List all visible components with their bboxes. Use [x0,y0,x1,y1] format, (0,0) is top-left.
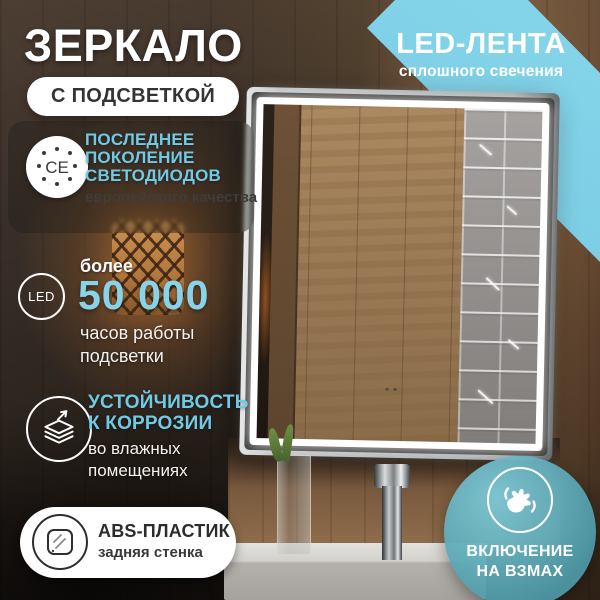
reflected-tiles [457,108,542,444]
hours-value: 50 000 [78,272,209,319]
tile-highlight [477,390,493,405]
corrosion-sub-line2: помещениях [88,460,188,482]
waving-hand-icon [487,467,553,533]
ribbon-title: LED-ЛЕНТА [383,30,579,59]
ribbon-text: LED-ЛЕНТА сплошного свечения [383,30,579,81]
feature-leds-text: ПОСЛЕДНЕЕ ПОКОЛЕНИЕ СВЕТОДИОДОВ европейс… [85,131,257,207]
feature-leds-subtitle: европейского качества [85,189,257,207]
feature-leds-line3: СВЕТОДИОДОВ [85,167,257,185]
mirror-reflection [257,104,543,444]
ribbon-subtitle: сплошного свечения [383,63,579,81]
faucet-neck [382,486,402,560]
tile-highlight [507,339,519,350]
svg-text:CE: CE [45,158,69,177]
gesture-line2: НА ВЗМАХ [444,562,596,582]
feature-corrosion-subtitle: во влажных помещениях [88,438,188,482]
product-banner: LED-ЛЕНТА сплошного свечения ЗЕРКАЛО С П… [0,0,600,600]
abs-subtitle: задняя стенка [98,544,203,561]
page-title: ЗЕРКАЛО [24,20,243,72]
ce-certified-icon: CE [26,136,88,198]
tile-highlight [486,277,500,291]
faucet [374,464,410,488]
corrosion-line1: УСТОЙЧИВОСТЬ [88,392,249,413]
feature-leds-line2: ПОКОЛЕНИЕ [85,149,257,167]
abs-title: ABS-ПЛАСТИК [98,521,230,542]
hours-subtitle: часов работы подсветки [80,322,194,368]
corrosion-sub-line1: во влажных [88,438,188,460]
led-mirror [239,87,560,461]
gesture-badge-text: ВКЛЮЧЕНИЕ НА ВЗМАХ [444,542,596,582]
touch-sensor-dots [386,387,397,390]
tile-highlight [479,144,492,156]
mirror-back-icon [32,514,88,570]
layers-arrow-icon [26,396,92,462]
hours-sub-line2: подсветки [80,345,194,368]
corrosion-line2: К КОРРОЗИИ [88,413,249,434]
tile-highlight [506,205,517,215]
feature-leds-line1: ПОСЛЕДНЕЕ [85,131,257,149]
gesture-line1: ВКЛЮЧЕНИЕ [444,542,596,562]
subtitle-pill: С ПОДСВЕТКОЙ [27,77,239,116]
gesture-activation-badge: ВКЛЮЧЕНИЕ НА ВЗМАХ [444,456,596,600]
hours-sub-line1: часов работы [80,322,194,345]
glass-cup [277,455,311,555]
led-ring-icon: LED [18,273,65,320]
feature-corrosion-title: УСТОЙЧИВОСТЬ К КОРРОЗИИ [88,392,249,434]
abs-feature-pill: ABS-ПЛАСТИК задняя стенка [20,507,236,578]
